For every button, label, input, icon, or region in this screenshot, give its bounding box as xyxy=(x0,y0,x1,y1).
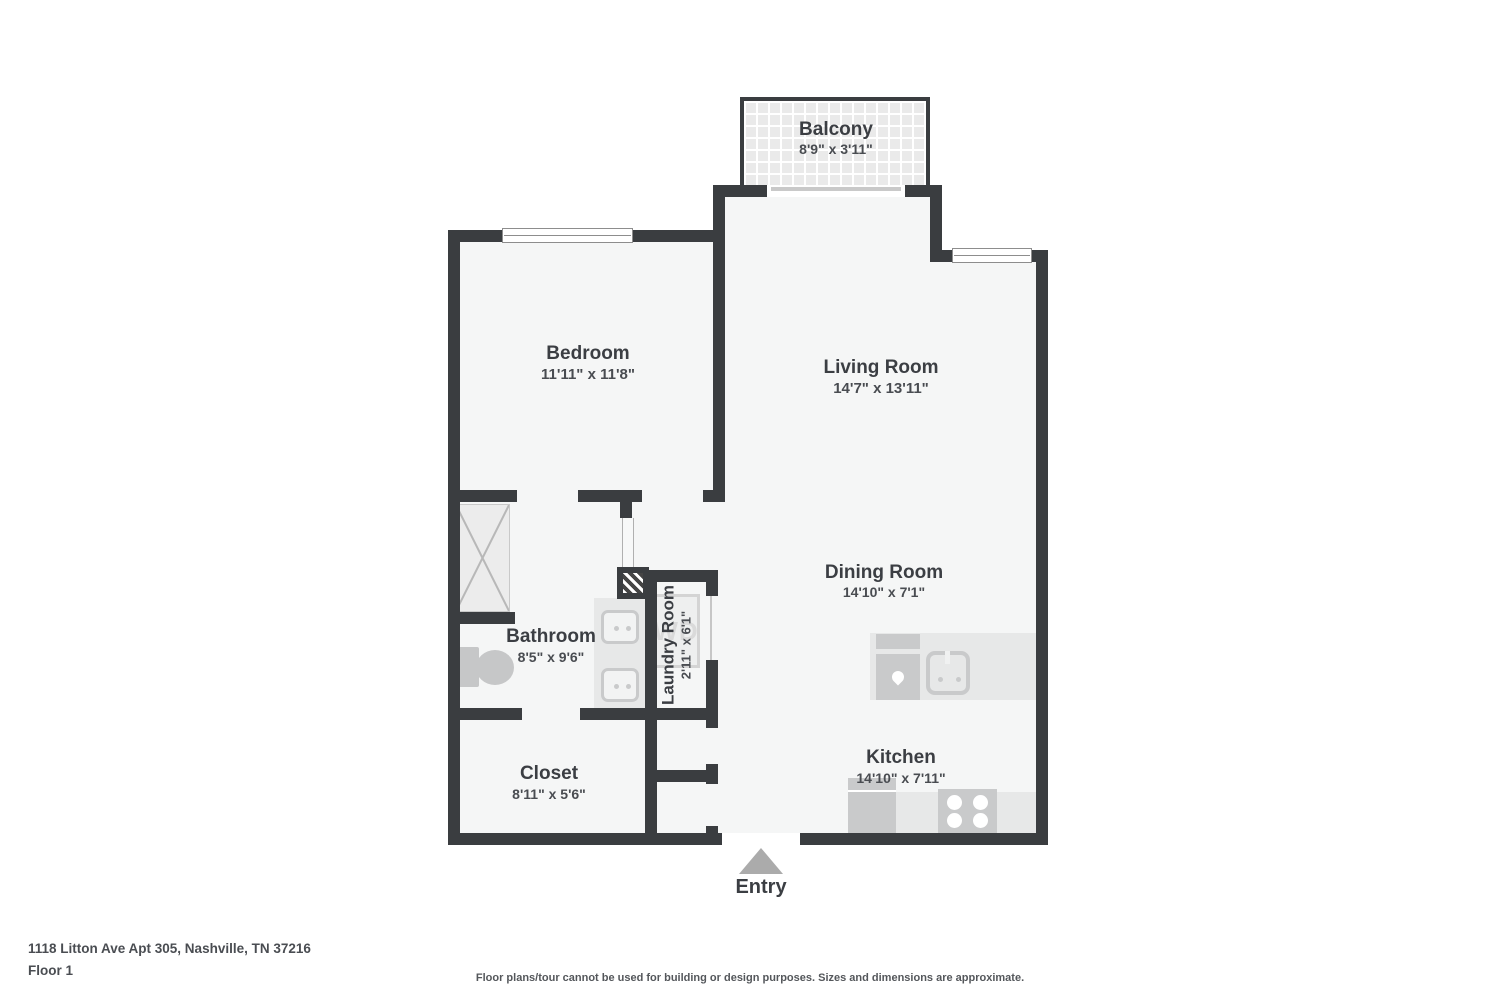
stove xyxy=(938,789,997,833)
living-room-window xyxy=(952,248,1032,263)
bathroom-label: Bathroom xyxy=(506,626,596,648)
floor-plan: WD Balcony 8'9" x 3'11" Bedroom 11'11" x… xyxy=(0,0,1500,999)
faucet-dot xyxy=(614,684,619,689)
faucet-dot xyxy=(626,684,631,689)
faucet-dot xyxy=(626,626,631,631)
faucet-dot xyxy=(614,626,619,631)
laundry-room-name: Laundry Room xyxy=(659,585,679,705)
living-room-dims: 14'7" x 13'11" xyxy=(833,380,929,397)
burner-icon xyxy=(947,795,962,810)
balcony-sliding-door xyxy=(767,185,905,197)
living-room-label: Living Room xyxy=(823,357,938,379)
entry-label: Entry xyxy=(735,876,786,899)
wall xyxy=(703,490,725,502)
laundry-room-dims: 2'11" x 6'1" xyxy=(679,585,694,705)
wall xyxy=(448,230,460,845)
floor-text: Floor 1 xyxy=(28,963,73,978)
dining-room-label: Dining Room xyxy=(825,562,943,584)
burner-icon xyxy=(973,795,988,810)
wall xyxy=(448,833,722,845)
entry-door-opening xyxy=(722,833,800,845)
wall xyxy=(713,197,725,502)
dishwasher xyxy=(876,634,920,649)
entry-arrow-icon xyxy=(739,848,783,874)
wall xyxy=(706,764,718,784)
bedroom-dims: 11'11" x 11'8" xyxy=(541,366,635,383)
wall xyxy=(706,826,718,845)
wall xyxy=(580,708,718,720)
bathroom-dims: 8'5" x 9'6" xyxy=(518,649,585,665)
closet-dims: 8'11" x 5'6" xyxy=(512,786,586,802)
wall xyxy=(713,185,767,197)
shower xyxy=(455,504,510,612)
kitchen-label: Kitchen xyxy=(866,747,936,769)
kitchen-dims: 14'10" x 7'11" xyxy=(856,770,945,786)
closet-label: Closet xyxy=(520,763,578,785)
wall xyxy=(706,582,718,596)
laundry-room-label: Laundry Room 2'11" x 6'1" xyxy=(659,585,694,705)
sliding-door-line xyxy=(771,187,901,191)
wall xyxy=(448,612,515,624)
wall xyxy=(630,230,725,242)
burner-icon xyxy=(947,813,962,828)
disclaimer-text: Floor plans/tour cannot be used for buil… xyxy=(476,972,1024,984)
vanity-sink xyxy=(601,668,639,702)
faucet-dot xyxy=(938,677,943,682)
refrigerator-door-line xyxy=(848,790,896,792)
wall xyxy=(448,490,517,502)
bedroom-window xyxy=(502,228,633,243)
bathroom-door-opening xyxy=(622,518,634,570)
balcony-label: Balcony xyxy=(799,119,873,141)
wall xyxy=(645,582,657,708)
laundry-door-line xyxy=(710,596,712,660)
wall xyxy=(930,250,952,262)
wall xyxy=(1032,250,1048,262)
address-text: 1118 Litton Ave Apt 305, Nashville, TN 3… xyxy=(28,941,311,956)
vanity-sink xyxy=(601,610,639,644)
wall xyxy=(800,833,1048,845)
wall xyxy=(620,502,632,518)
sink-divider xyxy=(945,651,950,664)
dining-room-dims: 14'10" x 7'1" xyxy=(843,584,925,600)
toilet-bowl xyxy=(476,650,514,685)
faucet-dot xyxy=(956,677,961,682)
balcony-dims: 8'9" x 3'11" xyxy=(799,141,873,157)
wall xyxy=(1036,250,1048,845)
wall xyxy=(706,720,718,728)
wall xyxy=(578,490,642,502)
wall xyxy=(645,720,657,845)
room-fill-living xyxy=(718,185,937,845)
wall xyxy=(706,660,718,708)
hatch-column xyxy=(617,567,649,599)
room-fill-living-right xyxy=(937,250,1048,845)
wall xyxy=(448,708,522,720)
kitchen-sink xyxy=(926,651,970,695)
bedroom-label: Bedroom xyxy=(546,343,629,365)
burner-icon xyxy=(973,813,988,828)
refrigerator xyxy=(848,778,896,833)
